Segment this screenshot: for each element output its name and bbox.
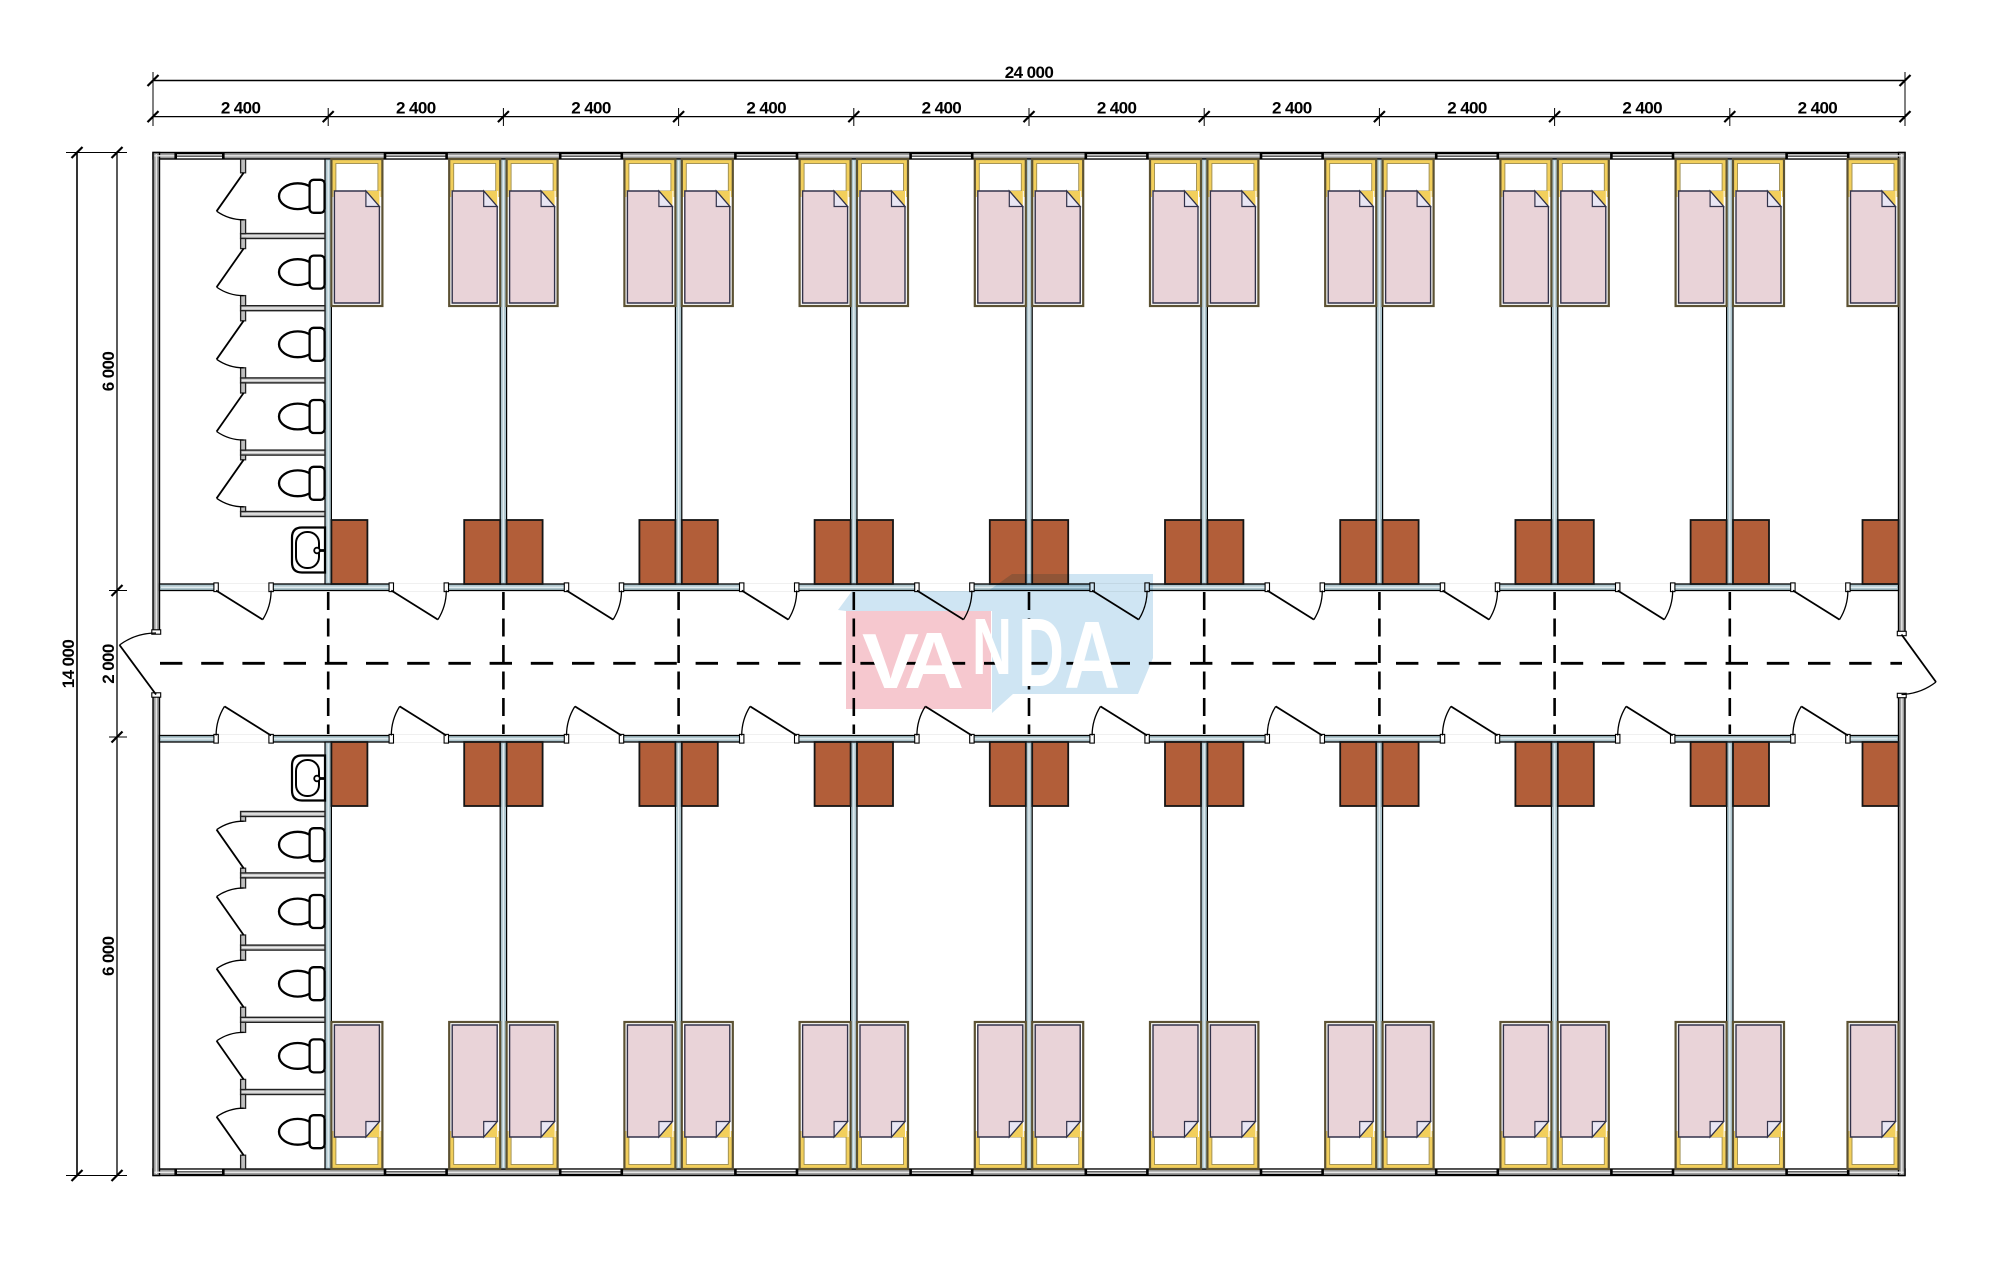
svg-text:2 000: 2 000 (99, 644, 118, 684)
svg-text:2 400: 2 400 (396, 99, 436, 118)
svg-text:24 000: 24 000 (1005, 63, 1054, 82)
svg-text:2 400: 2 400 (922, 99, 962, 118)
svg-text:2 400: 2 400 (1272, 99, 1312, 118)
svg-text:N: N (972, 602, 1012, 691)
svg-text:2 400: 2 400 (571, 99, 611, 118)
svg-text:14 000: 14 000 (59, 640, 78, 689)
svg-text:6 000: 6 000 (99, 936, 118, 976)
svg-text:A: A (1064, 602, 1120, 709)
svg-text:2 400: 2 400 (221, 99, 261, 118)
svg-text:D: D (1018, 598, 1064, 707)
svg-text:2 400: 2 400 (1798, 99, 1838, 118)
svg-text:2 400: 2 400 (1447, 99, 1487, 118)
svg-text:2 400: 2 400 (1622, 99, 1662, 118)
svg-text:A: A (904, 616, 964, 705)
svg-text:6 000: 6 000 (99, 352, 118, 392)
svg-text:2 400: 2 400 (746, 99, 786, 118)
svg-text:2 400: 2 400 (1097, 99, 1137, 118)
